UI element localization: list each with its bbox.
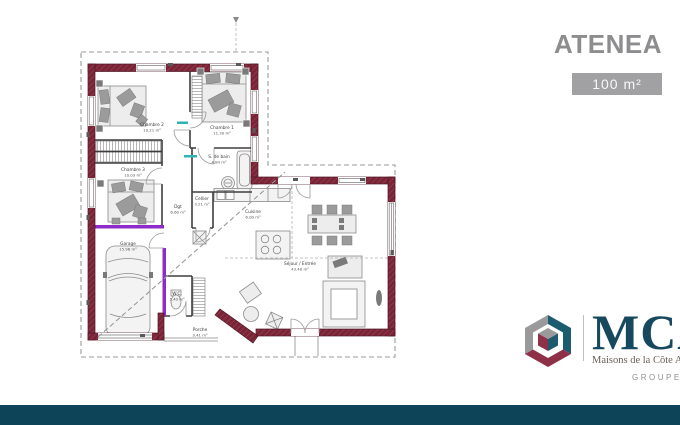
purple-wall-horizontal xyxy=(95,225,164,229)
mca-cube-icon xyxy=(521,311,575,369)
room-area-chambre-2: 10.21 m² xyxy=(143,128,161,133)
room-area-cuisine: 6.00 m² xyxy=(245,215,261,220)
north-mark-icon xyxy=(233,17,239,52)
logo-divider xyxy=(583,315,584,361)
room-area-garage: 15.96 m² xyxy=(119,247,137,252)
armchair xyxy=(239,282,282,329)
model-title: ATENEA xyxy=(554,29,662,60)
brand-group: GROUPE HEXAOM xyxy=(592,373,680,382)
kitchen-counter xyxy=(214,189,290,260)
logo-text-block: MCA Maisons de la Côte Atlantique GROUPE… xyxy=(592,311,680,382)
room-area-degagement: 6.60 m² xyxy=(170,210,186,215)
room-area-sejour: 43.40 m² xyxy=(291,267,309,272)
purple-wall-vertical xyxy=(163,248,167,316)
room-area-wc: 1.40 m² xyxy=(169,297,185,302)
area-badge: 100 m² xyxy=(572,73,662,95)
sofa xyxy=(323,281,382,327)
closet-chambre-2 xyxy=(96,141,162,151)
entry-closet xyxy=(193,278,205,316)
teal-mark-1 xyxy=(184,155,197,158)
tv-unit xyxy=(328,256,362,278)
room-area-chambre-3: 10.03 m² xyxy=(124,173,142,178)
car xyxy=(103,246,153,336)
room-area-chambre-1: 11.30 m² xyxy=(213,131,231,136)
footer-bar xyxy=(0,405,680,425)
bed-chambre-2 xyxy=(98,86,148,126)
teal-mark-2 xyxy=(177,122,188,125)
brand-name: MCA xyxy=(592,311,680,353)
area-badge-label: 100 m² xyxy=(592,76,642,92)
mca-logo: MCA Maisons de la Côte Atlantique GROUPE… xyxy=(521,311,680,382)
room-area-salle-de-bain: 4.84 m² xyxy=(211,160,227,165)
room-area-porche: 3.41 m² xyxy=(192,333,208,338)
brand-tagline: Maisons de la Côte Atlantique xyxy=(592,355,680,366)
dining-table xyxy=(308,205,356,245)
bed-chambre-3 xyxy=(108,180,154,224)
flyer-canvas: Chambre 2 10.21 m² Chambre 1 11.30 m² Ch… xyxy=(0,0,680,425)
porch-steps xyxy=(164,336,318,356)
bed-chambre-1 xyxy=(192,72,246,122)
water-heater xyxy=(193,231,206,244)
room-area-cellier: 3.21 m² xyxy=(194,202,210,207)
closet-chambre-3 xyxy=(96,152,162,162)
